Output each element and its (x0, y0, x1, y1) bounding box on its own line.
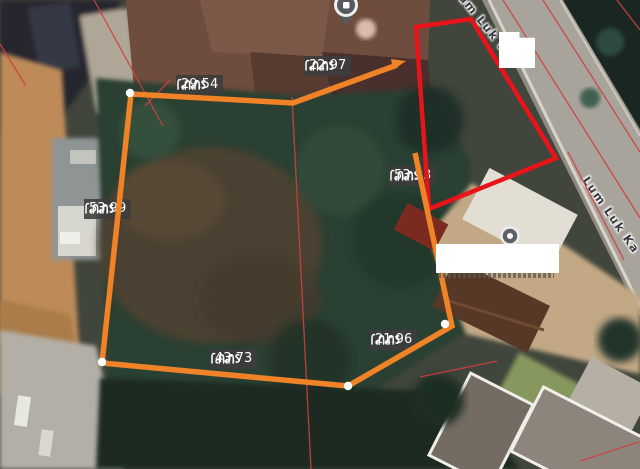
dot-marker-icon[interactable] (502, 228, 519, 245)
redaction-box-center (436, 244, 559, 273)
boundary-arrowhead (391, 59, 406, 70)
vertex-dot[interactable] (126, 89, 134, 97)
highlight-rectangle[interactable] (416, 19, 556, 209)
boundary-vertices (98, 89, 449, 390)
vertex-dot[interactable] (441, 320, 449, 328)
parcel-lines (0, 0, 640, 469)
map-annotations (0, 0, 640, 469)
plot-boundary-outline[interactable] (102, 65, 452, 386)
satellite-map-view[interactable]: Lum Luk Ka Lum Luk Ka 29.54 22.97 53.33 … (0, 0, 640, 469)
vertex-dot[interactable] (344, 382, 352, 390)
place-pin-icon[interactable] (336, 0, 357, 25)
clipped-label-text-remnant (438, 273, 554, 278)
vertex-dot[interactable] (98, 358, 106, 366)
